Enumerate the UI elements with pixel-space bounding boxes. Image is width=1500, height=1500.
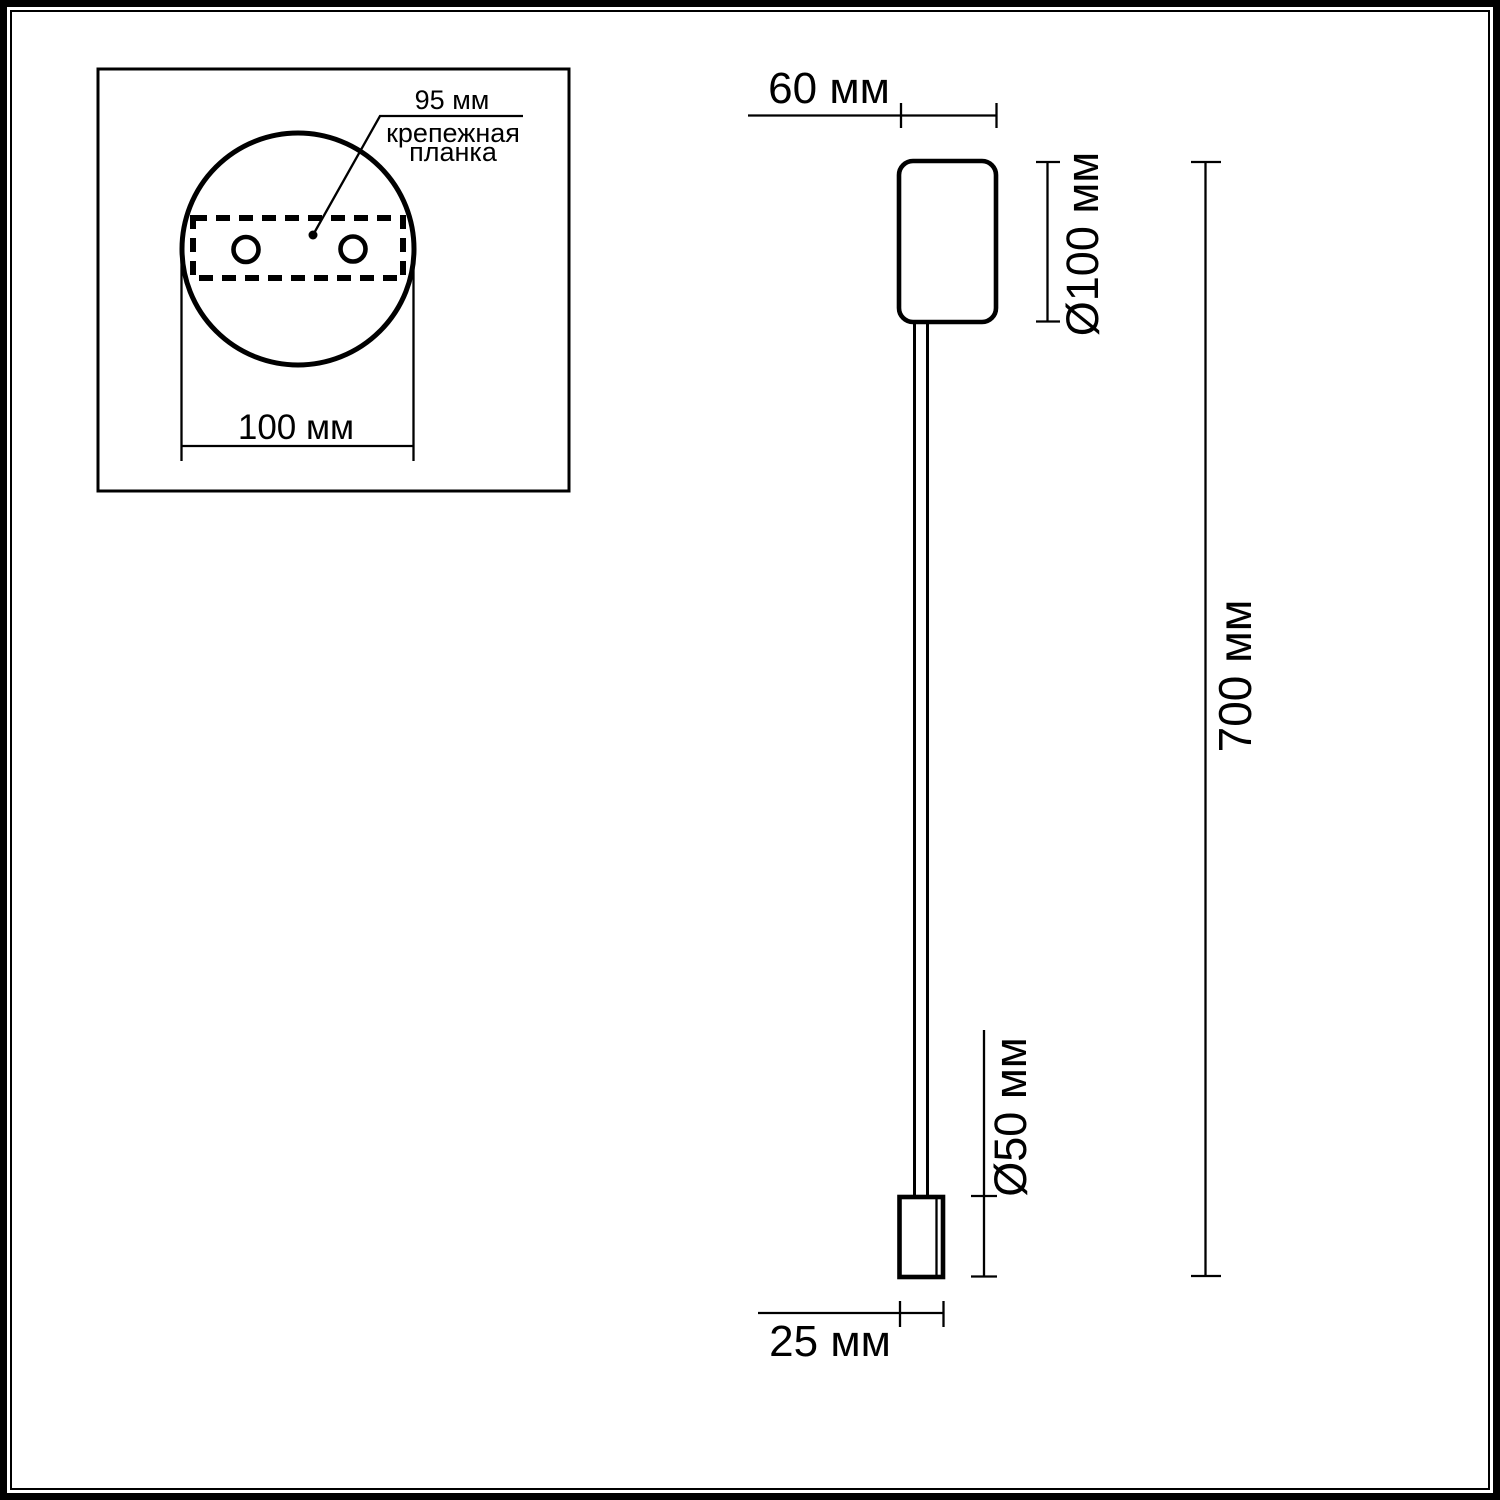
side-view: 60 мм Ø100 мм 700 мм Ø50 мм <box>748 64 1261 1366</box>
frame-inner-border <box>11 11 1489 1489</box>
page-frame <box>4 4 1497 1497</box>
dim-base-width: 100 мм <box>182 252 414 461</box>
dimension-drawing-svg: 95 мм крепежная планка 100 мм <box>0 0 1500 1500</box>
screw-hole-right <box>341 237 366 262</box>
dim-base-diameter: Ø100 мм <box>1036 152 1108 336</box>
inset-panel: 95 мм крепежная планка 100 мм <box>98 69 569 491</box>
lamp-body <box>899 161 996 322</box>
label-hole-spacing: 95 мм <box>415 85 490 115</box>
label-head-width: 25 мм <box>769 1317 891 1366</box>
label-mount-plate-line2: планка <box>409 137 498 167</box>
label-total-height: 700 мм <box>1209 600 1261 753</box>
label-base-diameter: Ø100 мм <box>1057 152 1108 336</box>
dim-head-width: 25 мм <box>758 1301 944 1366</box>
dim-head-diameter: Ø50 мм <box>971 1030 1036 1277</box>
technical-drawing-canvas: 95 мм крепежная планка 100 мм <box>0 0 1500 1500</box>
mounting-plate-dashed-outline <box>193 218 403 278</box>
screw-hole-left <box>234 237 259 262</box>
dim-body-width: 60 мм <box>748 64 997 128</box>
label-head-diameter: Ø50 мм <box>985 1037 1036 1196</box>
label-base-width: 100 мм <box>238 408 354 447</box>
label-body-width: 60 мм <box>768 64 890 113</box>
dim-total-height: 700 мм <box>1191 162 1261 1276</box>
frame-outer-border <box>4 4 1497 1497</box>
base-circle <box>182 133 414 365</box>
